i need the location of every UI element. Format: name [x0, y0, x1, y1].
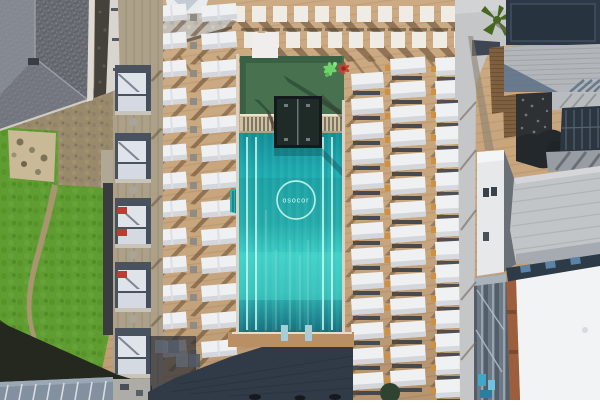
svg-text:osocor: osocor: [282, 198, 309, 205]
